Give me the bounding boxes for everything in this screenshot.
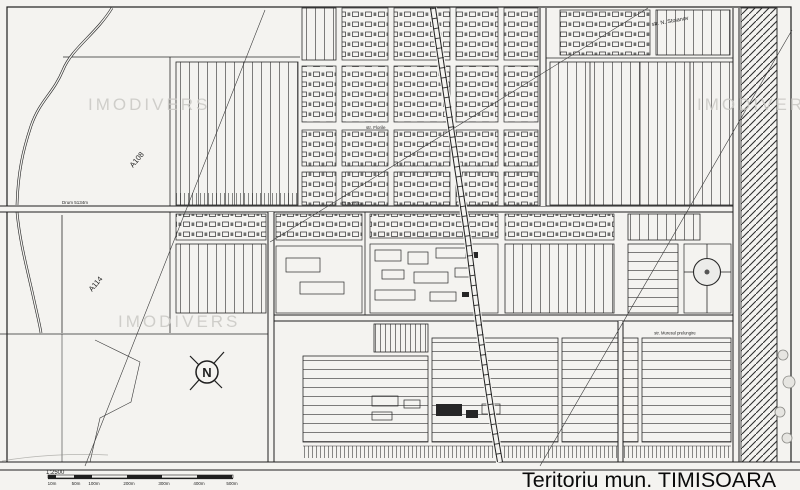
scale-tick: 400m (193, 481, 205, 486)
strip-parcels-west (176, 62, 298, 205)
tree-icon (782, 433, 792, 443)
watermark-text: IMODIVERS (697, 95, 800, 114)
scale-tick: 100m (88, 481, 100, 486)
watermark-text: IMODIVERS (88, 95, 210, 114)
scale-tick: 500m (226, 481, 238, 486)
scale-tick: 300m (158, 481, 170, 486)
compass-letter: N (202, 365, 211, 380)
street-label-muresul: str. Muresul prelungire (654, 331, 696, 336)
tree-icon (778, 350, 788, 360)
scanned-cadastral-map: N IMODIVERS IMODIVERS IMODIVERS A108 A11… (0, 0, 800, 490)
road-label-drum: Drum 5134m (62, 200, 88, 205)
scale-tick: 200m (123, 481, 135, 486)
street-label-pomilor: str. Pomilor (340, 201, 363, 206)
map-canvas: N IMODIVERS IMODIVERS IMODIVERS A108 A11… (0, 0, 800, 490)
street-label-florile: str. Florile (366, 125, 386, 130)
tree-icon (783, 376, 795, 388)
watermark-text: IMODIVERS (118, 312, 240, 331)
tree-icon (775, 407, 785, 417)
territory-title: Teritoriu mun. TIMISOARA (522, 468, 777, 490)
scale-tick: 10m (48, 481, 57, 486)
scale-tick: 50m (72, 481, 81, 486)
